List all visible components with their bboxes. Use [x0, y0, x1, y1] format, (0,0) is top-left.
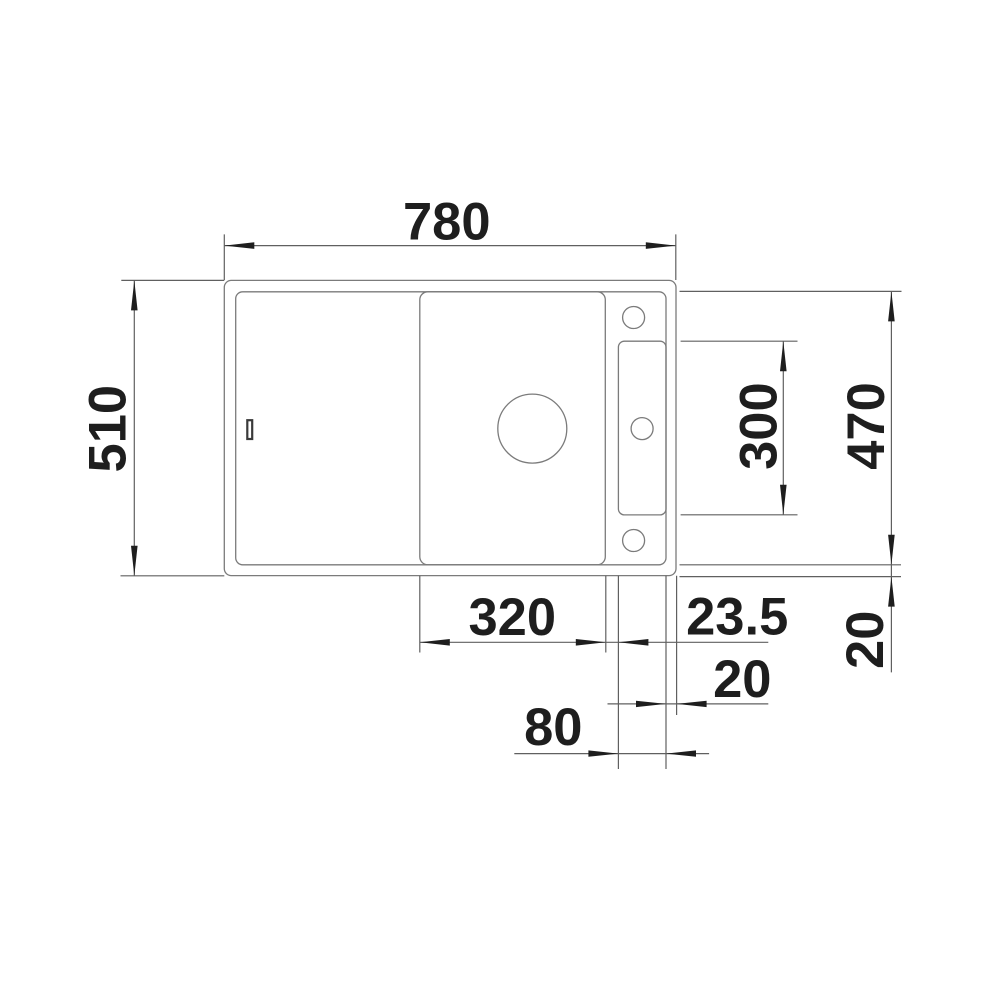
svg-text:320: 320: [468, 588, 556, 647]
svg-text:510: 510: [79, 385, 138, 473]
svg-text:20: 20: [836, 611, 895, 669]
svg-text:23.5: 23.5: [686, 587, 788, 646]
svg-text:470: 470: [837, 382, 896, 470]
svg-text:780: 780: [403, 193, 491, 252]
svg-text:20: 20: [713, 650, 771, 709]
svg-text:80: 80: [524, 698, 582, 757]
svg-text:300: 300: [730, 382, 789, 470]
